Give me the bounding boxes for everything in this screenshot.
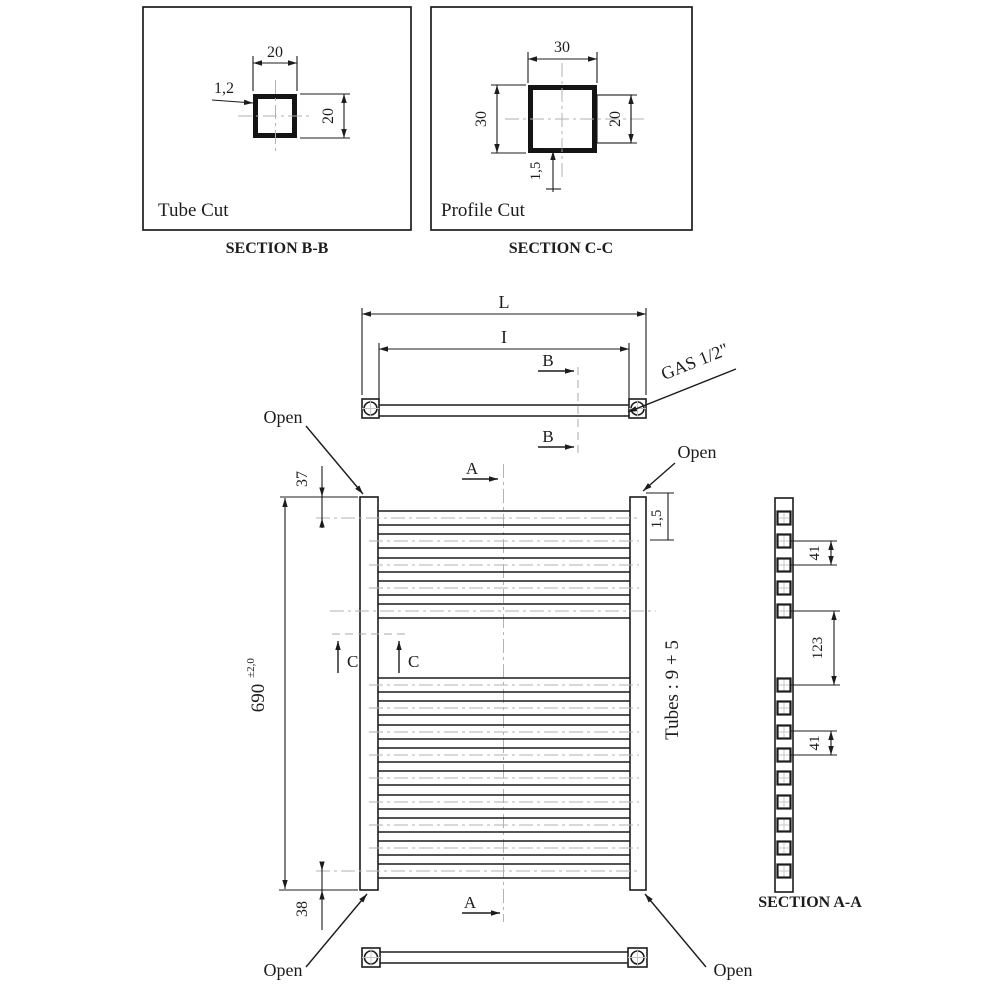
aa-profile-bar: [775, 498, 793, 892]
open-label: Open: [264, 960, 303, 980]
section-a-marker: A: [464, 893, 477, 912]
height-tolerance: ±2,0: [245, 658, 257, 678]
inner-length-dim: I: [501, 327, 507, 347]
technical-drawing-canvas: 20 20 1,2 Tube Cut SECTION B-B 30 30 20 …: [0, 0, 1000, 1000]
open-leader-arrow: [643, 463, 675, 491]
top-offset-dim: 37: [294, 471, 311, 487]
group-gap-dim: 123: [810, 637, 826, 660]
right-vertical-profile: [630, 497, 646, 890]
cc-wall-dim: 1,5: [528, 162, 544, 181]
section-b-marker: B: [542, 427, 553, 446]
bb-width-dim: 20: [267, 44, 283, 61]
section-cc-view: 30 30 20 1,5 Profile Cut SECTION C-C: [431, 7, 692, 257]
bb-caption: Tube Cut: [158, 200, 229, 221]
bb-wall-dim: 1,2: [214, 80, 234, 97]
open-label: Open: [714, 960, 753, 980]
open-label: Open: [678, 442, 717, 462]
section-bb-view: 20 20 1,2 Tube Cut SECTION B-B: [143, 7, 411, 257]
cc-tube-dim: 20: [607, 111, 624, 127]
top-view: L I B B GAS 1/2": [362, 292, 736, 456]
profile-wall-dim: 1,5: [649, 510, 665, 529]
tube-rungs: [316, 511, 656, 878]
open-leader-arrow: [306, 426, 363, 494]
section-cc-title: SECTION C-C: [509, 240, 613, 257]
cc-caption: Profile Cut: [441, 200, 526, 221]
section-aa-view: 41 123 41 SECTION A-A: [758, 498, 862, 911]
height-dim: 690: [248, 684, 269, 713]
section-b-marker: B: [542, 351, 553, 370]
bottom-offset-dim: 38: [294, 901, 311, 917]
section-bb-title: SECTION B-B: [226, 240, 329, 257]
tube-pitch-dim: 41: [807, 736, 823, 751]
cc-height-dim: 30: [473, 111, 490, 127]
overall-length-dim: L: [499, 292, 510, 312]
tubes-count-label: Tubes : 9 + 5: [662, 640, 683, 740]
front-view: A A C C Open Open Open Open 37 690 ±2,0 …: [245, 407, 753, 980]
section-c-marker: C: [408, 652, 419, 671]
section-c-marker: C: [347, 652, 358, 671]
section-a-marker: A: [466, 459, 479, 478]
open-leader-arrow: [306, 894, 367, 967]
bb-height-dim: 20: [320, 108, 337, 124]
bottom-view: [362, 948, 647, 967]
gas-connection-label: GAS 1/2": [658, 339, 731, 384]
left-vertical-profile: [360, 497, 378, 890]
open-label: Open: [264, 407, 303, 427]
section-bb-frame: [143, 7, 411, 230]
tube-pitch-dim: 41: [807, 546, 823, 561]
section-aa-title: SECTION A-A: [758, 894, 862, 911]
open-leader-arrow: [645, 894, 706, 967]
wall-leader-arrow: [212, 100, 253, 103]
aa-tube-sections: [778, 512, 791, 878]
radiator-drawing: 20 20 1,2 Tube Cut SECTION B-B 30 30 20 …: [0, 0, 1000, 1000]
cc-width-dim: 30: [554, 39, 570, 56]
